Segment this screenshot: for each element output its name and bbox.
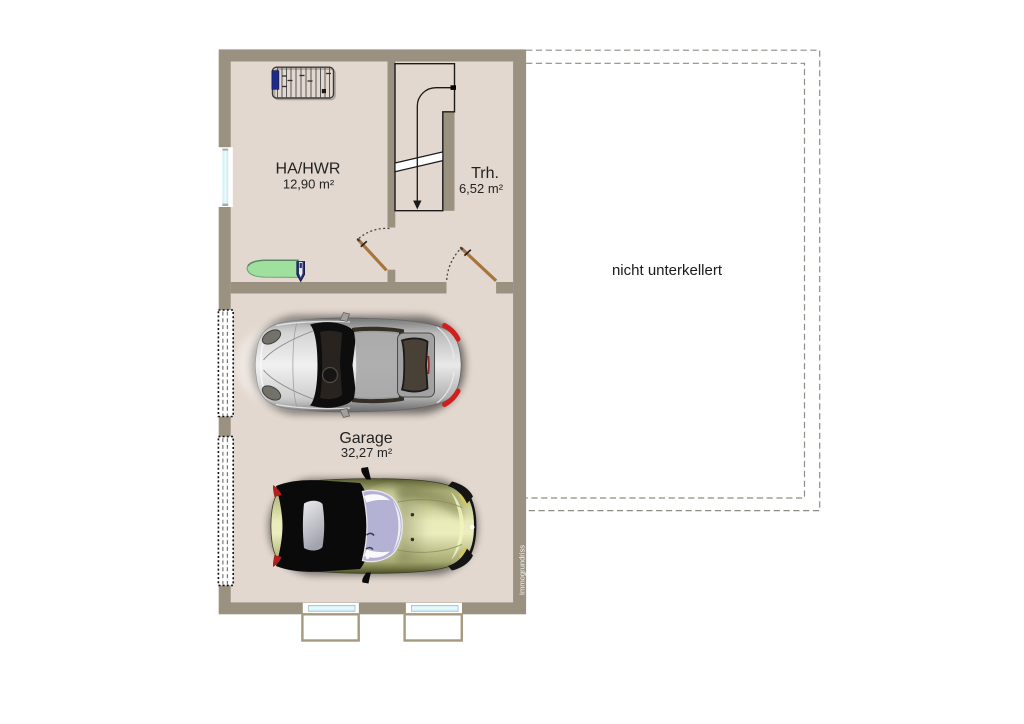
svg-text:12,90 m²: 12,90 m² — [283, 177, 335, 192]
svg-text:32,27 m²: 32,27 m² — [341, 445, 393, 460]
svg-text:Immogrundriss: Immogrundriss — [518, 545, 527, 595]
svg-text:HA/HWR: HA/HWR — [276, 161, 341, 178]
svg-text:6,52 m²: 6,52 m² — [459, 181, 504, 196]
svg-text:nicht unterkellert: nicht unterkellert — [612, 262, 723, 279]
svg-text:Trh.: Trh. — [471, 165, 499, 182]
